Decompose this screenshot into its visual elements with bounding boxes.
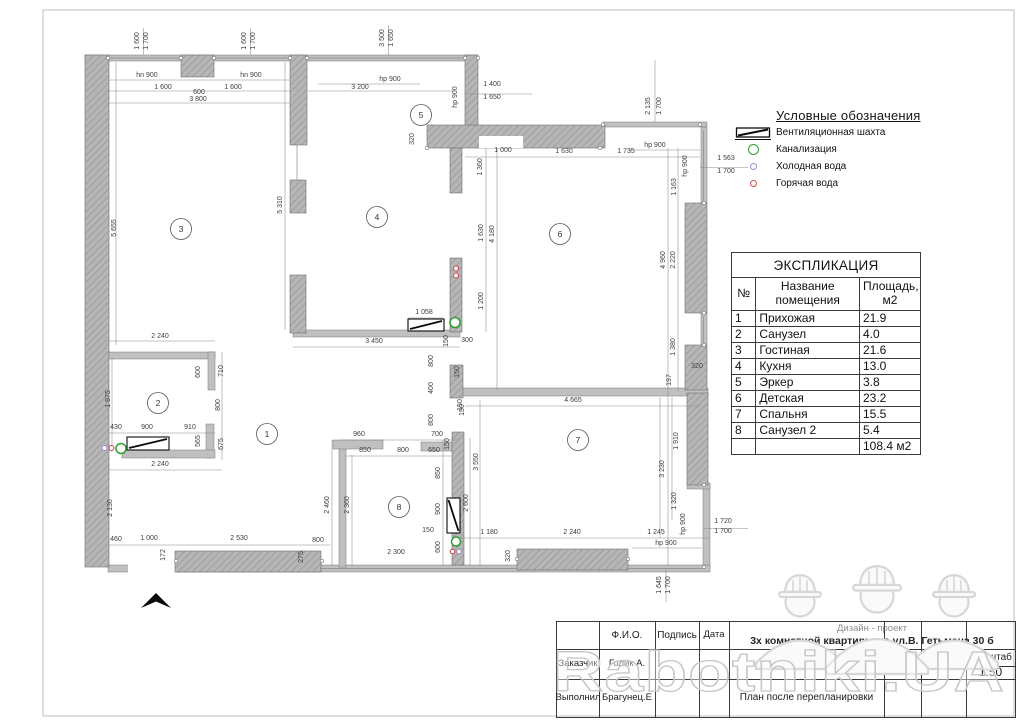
dimension-label: 3 450 [365,338,383,345]
hot-water-icon [731,180,776,187]
dimension-label: 1 700 [143,32,150,50]
wall-nodes [106,56,705,568]
room-number: 7 [576,435,581,445]
dimension-label: 1 650 [388,29,395,47]
dimension-label: 565 [195,435,202,447]
vent-shafts [127,319,460,533]
dimension-label: 1 180 [480,529,498,536]
dimension-label: 675 [218,438,225,450]
dimension-label: 2 220 [670,251,677,269]
dimension-label: 800 [215,399,222,411]
dimension-label: 1 645 [656,576,663,594]
date-header: Дата [699,622,729,649]
table-row: 7Спальня15.5 [732,407,921,423]
dimension-label: 2 130 [107,499,114,517]
table-title-row: ЭКСПЛИКАЦИЯ [732,253,921,278]
dimension-label: 600 [193,89,205,96]
project-line2: 3х комнатной квартиры по ул.В. Гетьмана … [750,635,994,647]
executor-name: Брагунец.Е [599,679,655,717]
room-number: 5 [419,110,424,120]
legend-item-hot-water: Горячая вода [731,176,966,191]
legend-item-label: Горячая вода [776,178,838,189]
dimension-label: 2 135 [645,97,652,115]
dimension-label: 700 [431,431,443,438]
dimension-label: 3 550 [473,453,480,471]
dimension-label: 430 [110,424,122,431]
dimension-label: 1 360 [477,158,484,176]
drawing-sheet: 1 6001 7001 6001 7003 5001 650hn 900hn 9… [0,0,1018,720]
dimension-label: 800 [312,537,324,544]
legend-item-sewage: Канализация [731,142,966,157]
dimension-label: 800 [397,447,409,454]
cold-water-icon [731,163,776,170]
room-number: 8 [397,502,402,512]
project-title: Дизайн - проект 3х комнатной квартиры по… [729,622,1015,649]
plumbing-symbol [450,318,460,328]
dimension-label: 150 [459,404,466,416]
dimension-label: 600 [435,541,442,553]
dimension-label: 197 [666,374,673,386]
legend-item-vent-shaft: Вентиляционная шахта [731,125,966,140]
dimension-label: 3 500 [379,29,386,47]
table-row: 6Детская23.2 [732,391,921,407]
table-header-row: № Название помещения Площадь, м2 [732,278,921,311]
dimension-label: 1 630 [478,224,485,242]
col-header-num: № [732,278,756,311]
dimension-label: 1 720 [714,518,732,525]
plumbing-symbol [454,266,459,271]
dimension-label: 2 360 [344,496,351,514]
plumbing-symbol [452,537,461,546]
dimension-label: 1 630 [555,148,573,155]
dimension-label: 5 310 [277,196,284,214]
sheet-label: Лист [884,649,921,666]
dimension-label: 900 [435,503,442,515]
dimension-label: 3 230 [659,460,666,478]
dimension-label: 1 245 [647,529,665,536]
col-header-area: Площадь, м2 [860,278,921,311]
dimension-label: 2 240 [151,333,169,340]
room-number: 4 [375,212,380,222]
customer-name: Голик А. [599,649,655,679]
dimension-label: 275 [298,551,305,563]
dimension-label: 320 [691,363,703,370]
dimension-label: 1 000 [494,147,512,154]
dimension-label: 5 655 [111,219,118,237]
vent-shaft-icon [731,125,776,141]
title-block: Ф.И.О. Подпись Дата Дизайн - проект 3х к… [556,621,1016,718]
dimension-label: 2 460 [324,496,331,514]
room-number: 3 [179,224,184,234]
north-arrow [141,593,171,608]
dimension-label: 1 600 [134,32,141,50]
dimension-label: 1 600 [224,84,242,91]
dimension-label: 320 [505,550,512,562]
plumbing-symbol [102,446,107,451]
table-total-row: 108.4 м2 [732,439,921,455]
dimension-label: 1 975 [105,390,112,408]
signature-header: Подпись [655,622,699,649]
dimension-label: 850 [435,467,442,479]
dimension-label: 1 700 [250,32,257,50]
walls [85,55,710,573]
dimension-label: 1 200 [478,292,485,310]
dimension-label: 850 [359,447,371,454]
table-row: 1Прихожая21.9 [732,311,921,327]
legend-item-cold-water: Холодная вода [731,159,966,174]
dimension-label: 320 [409,133,416,145]
dimension-label: hp 900 [644,142,666,149]
dimension-label: hn 900 [136,72,158,79]
room-number: 1 [265,429,270,439]
dimension-label: 910 [184,424,196,431]
room-number: 6 [558,229,563,239]
dimension-label: 460 [110,536,122,543]
dimension-label: 2 600 [463,494,470,512]
dimension-label: hp 900 [682,155,689,177]
plumbing-symbol [116,444,126,454]
legend-item-label: Вентиляционная шахта [776,127,885,138]
dimension-label: 600 [195,366,202,378]
dimension-label: 1 600 [241,32,248,50]
table-row: 5Эркер3.8 [732,375,921,391]
dimension-label: 1 320 [671,492,678,510]
dimension-label: 300 [461,337,473,344]
scale-value: 1:50 [966,666,1015,679]
dimension-label: 800 [428,355,435,367]
scale-label: Масштаб [966,649,1015,666]
legend-item-label: Холодная вода [776,161,846,172]
plumbing-symbol [450,549,455,554]
dimension-label: 4 960 [660,251,667,269]
dimension-label: 2 240 [151,461,169,468]
legend: Условные обозначения Вентиляционная шахт… [731,108,966,191]
plumbing-symbol [454,273,459,278]
dimension-label: 150 [443,335,450,347]
dimension-label: hn 900 [240,72,262,79]
dimension-label: 1 650 [483,94,501,101]
dimension-label: 4 180 [489,225,496,243]
dimension-label: 1 735 [617,148,635,155]
dimension-label: 1 058 [415,309,433,316]
col-header-name: Название помещения [756,278,860,311]
dimension-label: 172 [160,549,167,561]
room-number: 2 [156,398,161,408]
fio-header: Ф.И.О. [599,622,655,649]
dimension-label: hp 900 [452,86,459,108]
dimension-label: 400 [428,382,435,394]
dimension-label: 2 240 [563,529,581,536]
dimension-label: 150 [422,527,434,534]
dimension-label: 960 [353,431,365,438]
sewage-icon [731,144,776,155]
dimension-label: 150 [444,438,451,450]
executor-label: Выполнил [557,679,599,717]
dimension-label: 2 300 [387,549,405,556]
dimension-label: 2 530 [230,535,248,542]
customer-label: Заказчик [557,649,599,679]
dimension-label: 3 200 [351,84,369,91]
dimension-label: 710 [218,365,225,377]
dimension-label: 1 700 [665,576,672,594]
plumbing-symbol [457,549,462,554]
dimension-label: 4 665 [564,397,582,404]
dimension-label: 1 163 [671,178,678,196]
plumbing-symbol [109,446,114,451]
drawing-title: План после перепланировки [729,679,884,717]
dimension-label: 800 [428,414,435,426]
dimension-label: 1 000 [140,535,158,542]
dimension-label: 900 [141,424,153,431]
dimension-label: 1 700 [714,528,732,535]
dimension-label: 1 380 [670,338,677,356]
dimension-label: hp 900 [379,76,401,83]
table-row: 4Кухня13.0 [732,359,921,375]
project-line1: Дизайн - проект [837,624,907,635]
dimension-label: 150 [454,366,461,378]
sheets-label: Листов [921,649,966,666]
table-row: 8Санузел 25.4 [732,423,921,439]
dimension-label: 1 910 [673,432,680,450]
table-row: 2Санузел4.0 [732,327,921,343]
table-title: ЭКСПЛИКАЦИЯ [732,253,921,278]
dimension-label: hp 900 [655,540,677,547]
explication-table: ЭКСПЛИКАЦИЯ № Название помещения Площадь… [731,252,921,455]
table-row: 3Гостиная21.6 [732,343,921,359]
legend-item-label: Канализация [776,144,837,155]
dimension-label: 1 400 [483,81,501,88]
legend-title: Условные обозначения [776,108,966,123]
dimension-label: 1 700 [656,97,663,115]
dimension-label: 3 800 [189,96,207,103]
dimension-label: 650 [428,447,440,454]
dimension-label: 1 600 [154,84,172,91]
dimension-label: hp 900 [680,513,687,535]
